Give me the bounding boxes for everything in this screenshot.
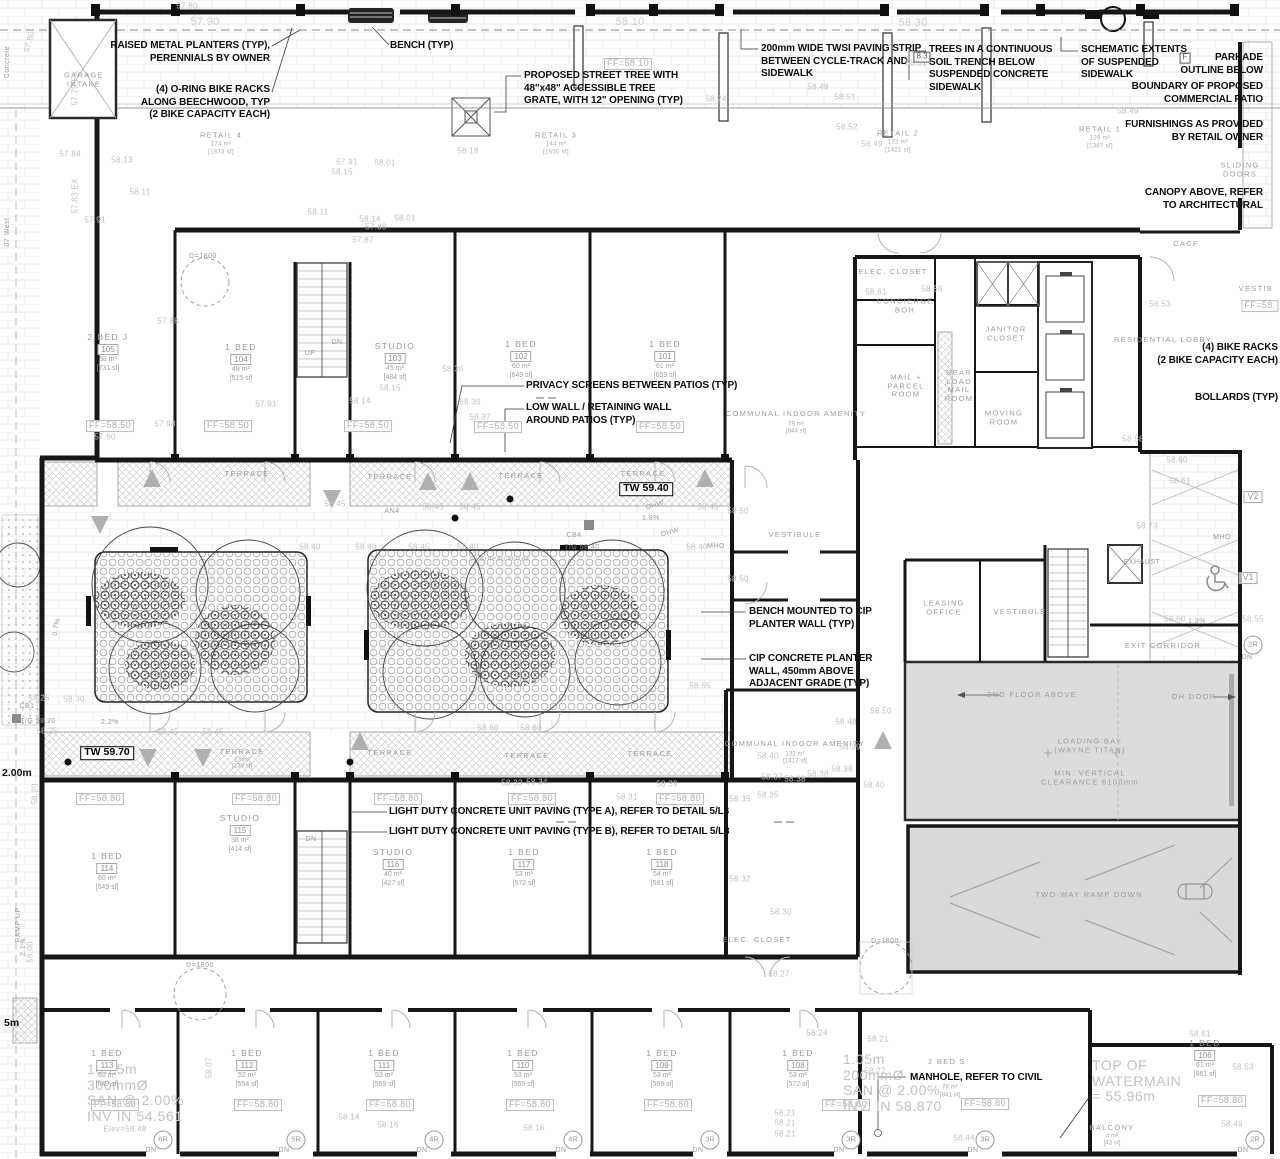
spot-elevation: 58.45 — [459, 504, 481, 513]
spot-elevation: 58.36 — [442, 366, 464, 375]
ff-elevation-label: FF=58.80 — [508, 793, 556, 805]
unit-type: STUDIO — [220, 813, 261, 823]
unit-number: 111 — [374, 1060, 394, 1071]
spot-elevation: 58.60 — [520, 725, 542, 734]
annotation-note: (4) O-RING BIKE RACKSALONG BEECHWOOD, TY… — [141, 84, 270, 122]
spot-elevation: 58.37 — [469, 414, 491, 423]
annotation-note: CANOPY ABOVE, REFERTO ARCHITECTURAL — [1145, 187, 1263, 212]
room-label: ELEC. CLOSET — [722, 936, 791, 945]
spot-elevation: 58.21 — [867, 1036, 889, 1045]
spot-elevation: 58.14 — [349, 398, 371, 407]
unit-number: 101 — [654, 351, 675, 362]
unit-area: [515 sf] — [230, 375, 253, 384]
plan-label: DN — [416, 1147, 427, 1155]
spot-elevation: 58.53 — [1149, 301, 1171, 310]
spot-elevation: 58.11 — [308, 209, 329, 218]
plan-label: OHW — [645, 500, 665, 512]
spot-elevation: 58.38 — [831, 766, 853, 775]
unit-area: [731 sf] — [97, 365, 120, 374]
unit-number: 115 — [230, 825, 251, 836]
spot-elevation: 58.56 — [921, 286, 943, 295]
unit-label-118: 1 BED11854 m²[581 sf] — [646, 847, 678, 888]
room-label: 2ND FLOOR ABOVE — [987, 691, 1077, 700]
unit-type: 1 BED — [1189, 1038, 1221, 1048]
spot-elevation: 58.31 — [616, 794, 638, 803]
ff-elevation-label: FF=58.80 — [76, 793, 124, 805]
annotation-note: PRIVACY SCREENS BETWEEN PATIOS (TYP) — [526, 380, 737, 393]
unit-area: 40 m² — [384, 871, 402, 880]
spot-elevation: 58.40 — [355, 544, 377, 553]
plan-label: T/G 58.20 — [20, 718, 56, 726]
unit-number: 102 — [510, 351, 531, 362]
spot-elevation: 58.40 — [686, 544, 708, 553]
room-area-label: 78 m² — [942, 1085, 958, 1092]
unit-label-111: 1 BED11153 m²[569 sf] — [368, 1048, 400, 1089]
annotation-note: BENCH MOUNTED TO CIPPLANTER WALL (TYP) — [749, 606, 872, 631]
spot-elevation: 57.91 — [336, 159, 358, 168]
unit-type: 1 BED — [782, 1048, 814, 1058]
plan-label: 57.79 EX — [72, 70, 81, 105]
spot-elevation: 58.33 — [501, 780, 523, 789]
spot-elevation: 58.32 — [729, 876, 751, 885]
room-area-label: [844 sf] — [786, 429, 806, 436]
unit-area: 61 m² — [1196, 1062, 1214, 1071]
annotation-note: BOUNDARY OF PROPOSEDCOMMERCIAL PATIO — [1132, 81, 1263, 106]
spot-elevation: 58.60 — [1164, 616, 1186, 625]
spot-elevation: 58.50 — [727, 576, 749, 585]
unit-number: 118 — [652, 859, 673, 870]
unit-area: 60 m² — [98, 875, 116, 884]
plan-label: AN4 — [384, 508, 399, 516]
room-label: RETAIL 1129 m²[1387 sf] — [1079, 125, 1121, 151]
spot-elevation: 58.44 — [953, 1135, 975, 1144]
floor-plan-canvas: RAISED METAL PLANTERS (TYP),PERENNIALS B… — [0, 0, 1280, 1159]
unit-label-112: 1 BED11252 m²[554 sf] — [231, 1048, 263, 1089]
unit-type: 1 BED — [231, 1048, 263, 1058]
unit-area: [649 sf] — [510, 372, 533, 381]
room-label: TERRACE — [628, 750, 673, 759]
plan-label: DN — [1237, 1147, 1248, 1155]
spot-elevation: 58.40 — [457, 544, 479, 553]
ff-elevation-label: FF=58.80 — [644, 1099, 692, 1111]
spot-elevation: 58.49 — [1221, 1121, 1243, 1130]
plan-label: 07 West — [4, 217, 12, 246]
room-label: TERRACE — [225, 470, 270, 479]
unit-label-113: 1 BED11360 m²[649 sf] — [91, 1048, 123, 1089]
plan-label: EXHAUST — [1124, 559, 1161, 567]
ff-elevation-label: FF=58. — [1241, 300, 1278, 312]
unit-number: 110 — [513, 1060, 534, 1071]
unit-area: 60 m² — [512, 363, 530, 372]
parking-stall-label: V1 — [1238, 572, 1257, 584]
spot-elevation: 58.61 — [1169, 478, 1191, 487]
plan-label: 1.3% — [1188, 618, 1206, 626]
unit-area: [649 sf] — [96, 884, 119, 893]
unit-number: 114 — [97, 863, 118, 874]
ff-elevation-label: FF=58.80 — [234, 1099, 282, 1111]
tw-elevation-label: TW 59.70 — [80, 746, 134, 760]
spot-elevation: 57.91 — [84, 217, 106, 226]
unit-label-115: STUDIO11538 m²[414 sf] — [220, 813, 261, 854]
annotation-note: PROPOSED STREET TREE WITH48"x48" ACCESSI… — [524, 70, 683, 108]
unit-area: [484 sf] — [384, 374, 407, 383]
unit-label-117: 1 BED11753 m²[572 sf] — [508, 847, 540, 888]
spot-elevation: 58.49 — [861, 141, 883, 150]
annotation-note: TREES IN A CONTINUOUSSOIL TRENCH BELOWSU… — [929, 44, 1052, 94]
spot-elevation: 58.40 — [863, 782, 885, 791]
plan-label: 0.7% — [52, 617, 63, 636]
unit-type: 1 BED — [649, 339, 681, 349]
unit-area: [572 sf] — [787, 1081, 810, 1090]
plan-label: CB1 — [19, 703, 34, 711]
plan-label: OHW — [660, 527, 680, 539]
unit-area: 52 m² — [238, 1072, 256, 1081]
room-label: LOADING BAY(WAYNE TITAN) — [1054, 738, 1126, 755]
spot-elevation: 58.30 — [898, 17, 927, 29]
plan-label: 2.2% — [101, 719, 119, 727]
unit-type: 1 BED — [507, 1048, 539, 1058]
spot-elevation: 57.90 — [190, 16, 219, 28]
unit-area: [572 sf] — [513, 880, 536, 889]
ff-elevation-label: FF=58.80 — [1198, 1095, 1246, 1107]
unit-area: [649 sf] — [96, 1081, 119, 1090]
room-label: MAIL +PARCELROOM — [887, 373, 924, 399]
unit-area: [414 sf] — [229, 846, 252, 855]
unit-area: [427 sf] — [382, 880, 405, 889]
unit-area: 53 m² — [789, 1072, 807, 1081]
plan-label: D=1800 — [871, 938, 899, 946]
spot-elevation: 58.50 — [870, 708, 892, 717]
spot-elevation: 58.25 — [36, 728, 58, 737]
unit-type: 1 BED — [508, 847, 540, 857]
plan-label: 8.3 — [913, 52, 930, 63]
civil-note: 1.05m200mmØSAN @ 2.00%INV. IN 58.870 — [843, 1052, 942, 1114]
spot-elevation: 58.52 — [836, 124, 858, 133]
unit-number: 106 — [1194, 1050, 1215, 1061]
unit-label-109: 1 BED10953 m²[569 sf] — [646, 1048, 678, 1089]
room-label: LEASINGOFFICE — [923, 600, 965, 617]
room-label: TWO-WAY RAMP DOWN — [1035, 891, 1143, 900]
plan-label: 57.80 — [23, 30, 37, 53]
annotation-note: LIGHT DUTY CONCRETE UNIT PAVING (TYPE B)… — [389, 826, 730, 839]
unit-label-102: 1 BED10260 m²[649 sf] — [505, 339, 537, 380]
spot-elevation: 58.38 — [784, 776, 806, 785]
door-tag: 2R — [1244, 636, 1263, 655]
unit-type: 1 BED — [368, 1048, 400, 1058]
spot-elevation: 58.45 — [324, 501, 346, 510]
spot-elevation: 58.45 — [697, 504, 719, 513]
unit-type: 1 BED — [91, 1048, 123, 1058]
unit-area: [569 sf] — [651, 1081, 674, 1090]
spot-elevation: 58.21 — [774, 1120, 796, 1129]
room-label: COMMUNAL INDOOR AMENITY — [726, 410, 866, 419]
spot-elevation: 58.21 — [774, 1131, 796, 1140]
plan-label: DN — [1241, 654, 1252, 662]
spot-elevation: 57.80 — [176, 3, 198, 12]
spot-elevation: 58.48 — [807, 84, 829, 93]
ff-elevation-label: FF=58.10 — [604, 58, 652, 70]
spot-elevation: 58.00 — [27, 941, 36, 963]
unit-number: 109 — [651, 1060, 672, 1071]
room-label: RESIDENTIAL LOBBY — [1114, 336, 1212, 345]
spot-elevation: 58.53 — [1232, 1064, 1254, 1073]
spot-elevation: 58.45 — [408, 544, 430, 553]
room-label: MOVINGROOM — [985, 410, 1023, 427]
room-label: RETAIL 3144 m²[1550 sf] — [535, 131, 577, 157]
unit-area: 60 m² — [98, 1072, 116, 1081]
spot-elevation: 58.48 — [835, 719, 857, 728]
spot-elevation: 58.35 — [757, 792, 779, 801]
spot-elevation: 58.15 — [379, 385, 401, 394]
unit-area: [569 sf] — [512, 1081, 535, 1090]
unit-label-110: 1 BED11053 m²[569 sf] — [507, 1048, 539, 1089]
spot-elevation: 58.18 — [457, 148, 479, 157]
room-area-label: [841 sf] — [940, 1093, 960, 1100]
unit-label-108: 1 BED10853 m²[572 sf] — [782, 1048, 814, 1089]
annotation-note: (4) BIKE RACKS(2 BIKE CAPACITY EACH) — [1157, 342, 1278, 367]
room-label: JANITORCLOSET — [985, 326, 1026, 343]
spot-elevation: 58.45 — [202, 729, 224, 738]
spot-elevation: 58.37 — [761, 774, 783, 783]
unit-number: 103 — [384, 353, 405, 364]
unit-area: 48 m² — [232, 366, 250, 375]
spot-elevation: 58.49 — [1117, 108, 1139, 117]
room-label: REARLOADMAILROOM — [945, 369, 974, 403]
ff-elevation-label: FF=58.50 — [344, 420, 392, 432]
unit-area: [554 sf] — [236, 1081, 259, 1090]
spot-elevation: 58.58 — [1122, 436, 1144, 445]
ff-elevation-label: FF=58.80 — [656, 793, 704, 805]
plan-label: DN — [555, 1147, 566, 1155]
plan-label: UP — [305, 350, 316, 358]
spot-elevation: 58.10 — [615, 16, 644, 28]
spot-elevation: 57.89 — [365, 224, 387, 233]
plan-label: T/G 58.40 — [564, 544, 600, 552]
ff-elevation-label: FF=58.80 — [374, 793, 422, 805]
room-area-label: [43 sf] — [1104, 1141, 1121, 1148]
spot-elevation: 58.01 — [374, 160, 396, 169]
spot-elevation: 58.16 — [377, 1122, 399, 1131]
spot-elevation: 57.98 — [154, 421, 176, 430]
unit-label-103: STUDIO10345 m²[484 sf] — [375, 341, 416, 382]
room-area-label: [1417 sf] — [783, 759, 807, 766]
unit-type: 1 BED — [646, 1048, 678, 1058]
unit-area: [581 sf] — [651, 880, 674, 889]
room-label: SLIDINGDOORS — [1220, 162, 1259, 179]
unit-area: [661 sf] — [1194, 1071, 1217, 1080]
unit-area: 53 m² — [653, 1072, 671, 1081]
unit-number: 113 — [97, 1060, 118, 1071]
spot-elevation: 58.61 — [865, 289, 887, 298]
unit-area: 68 m² — [99, 356, 117, 365]
spot-elevation: 58.55 — [689, 683, 711, 692]
spot-elevation: 58.14 — [338, 1114, 360, 1123]
spot-elevation: 58.35 — [729, 796, 751, 805]
room-label: VESTIBULE — [769, 531, 822, 540]
parking-stall-label: V2 — [1243, 491, 1262, 503]
plan-label: Concrete — [4, 46, 12, 78]
annotation-note: BENCH (TYP) — [390, 40, 453, 53]
annotation-note: CIP CONCRETE PLANTERWALL, 450mm ABOVEADJ… — [749, 653, 872, 691]
unit-area: 53 m² — [514, 1072, 532, 1081]
plan-label: DN — [278, 1147, 289, 1155]
spot-elevation: 58.38 — [807, 771, 829, 780]
spot-elevation: 57.90 — [94, 434, 116, 443]
spot-elevation: 58.39 — [656, 781, 678, 790]
unit-label-106: 1 BED10661 m²[661 sf] — [1189, 1038, 1221, 1079]
room-label: CONCIERGEBOH — [876, 298, 933, 315]
unit-number: 105 — [97, 344, 118, 355]
room-label: VESTIB — [1239, 285, 1273, 294]
unit-area: 61 m² — [656, 363, 674, 372]
annotation-note: PARKADEOUTLINE BELOW — [1180, 52, 1263, 77]
plan-label: 5m — [4, 1018, 19, 1030]
unit-label-105: 2 BED J10568 m²[731 sf] — [88, 332, 129, 373]
unit-number: 117 — [514, 859, 535, 870]
spot-elevation: 58.11 — [130, 189, 151, 198]
spot-elevation: 58.07 — [206, 1057, 215, 1079]
plan-label: Elev=58.48 — [103, 1126, 146, 1135]
spot-elevation: 58.34 — [526, 779, 548, 788]
spot-elevation: 57.87 — [352, 237, 374, 246]
spot-elevation: 57.91 — [255, 401, 277, 410]
plan-label: DN — [833, 1147, 844, 1155]
plan-label: MHO — [1213, 534, 1231, 542]
plan-label: DN — [967, 1147, 978, 1155]
ff-elevation-label: FF=58.50 — [86, 420, 134, 432]
ff-elevation-label: FF=58.80 — [232, 793, 280, 805]
spot-elevation: 58.27 — [768, 971, 790, 980]
room-label: TERRACE — [499, 472, 544, 481]
room-area-label: [139 sf] — [232, 764, 252, 771]
plan-label: CB4 — [566, 532, 581, 540]
room-label: TERRACE — [368, 473, 413, 482]
annotation-note: BOLLARDS (TYP) — [1195, 392, 1278, 405]
room-label: TERRACE — [505, 752, 550, 761]
unit-area: 38 m² — [231, 837, 249, 846]
spot-elevation: 58.25 — [28, 695, 50, 704]
unit-label-116: STUDIO11640 m²[427 sf] — [373, 847, 414, 888]
ff-elevation-label: FF=58.80 — [506, 1099, 554, 1111]
spot-elevation: 58.60 — [477, 725, 499, 734]
spot-elevation: 57.84 — [59, 151, 81, 160]
room-label: OH DOOR — [1172, 693, 1217, 702]
room-label: RETAIL 4174 m²[1873 sf] — [200, 131, 242, 157]
spot-elevation: 58.36 — [459, 399, 481, 408]
spot-elevation: 58.51 — [834, 94, 856, 103]
plan-label: DN — [692, 1147, 703, 1155]
plan-label: RAMP UP — [15, 907, 23, 942]
annotation-note: LIGHT DUTY CONCRETE UNIT PAVING (TYPE A)… — [389, 806, 729, 819]
unit-type: 2 BED J — [88, 332, 129, 342]
room-label: ELEC. CLOSET — [858, 268, 927, 277]
spot-elevation: 58.13 — [111, 157, 133, 166]
annotation-note: RAISED METAL PLANTERS (TYP),PERENNIALS B… — [110, 40, 270, 65]
unit-number: 108 — [787, 1060, 808, 1071]
room-label: MIN. VERTICALCLEARANCE 6100mm — [1041, 770, 1139, 787]
unit-label-101: 1 BED10161 m²[659 sf] — [649, 339, 681, 380]
spot-elevation: 58.45 — [422, 504, 444, 513]
plan-label: 2.00m — [2, 768, 32, 780]
spot-elevation: 58.39 — [839, 744, 861, 753]
unit-type: 1 BED — [505, 339, 537, 349]
spot-elevation: 58.60 — [1166, 457, 1188, 466]
plan-label: 57.83 EX — [72, 178, 81, 213]
spot-elevation: 58.50 — [727, 508, 749, 517]
plan-label: DN — [145, 1147, 156, 1155]
plan-label: MHO — [707, 543, 725, 551]
plan-label: D=1800 — [189, 253, 217, 261]
unit-area: 53 m² — [375, 1072, 393, 1081]
unit-type: 1 BED — [91, 851, 123, 861]
plan-label: DN — [305, 836, 316, 844]
annotation-note: SCHEMATIC EXTENTSOF SUSPENDEDSIDEWALK — [1081, 44, 1187, 82]
annotation-note: FURNISHINGS AS PROVIDEDBY RETAIL OWNER — [1125, 119, 1263, 144]
annotation-note: 200mm WIDE TWSI PAVING STRIPBETWEEN CYCL… — [761, 43, 921, 81]
plan-label: DN — [331, 339, 342, 347]
plan-label: F — [1180, 53, 1191, 64]
ff-elevation-label: FF=58.80 — [366, 1099, 414, 1111]
room-label: TERRACE — [368, 749, 413, 758]
plan-label: Overhead Wires — [470, 555, 531, 562]
unit-type: 1 BED — [225, 342, 257, 352]
spot-elevation: 58.55 — [1242, 616, 1264, 625]
spot-elevation: 58.30 — [63, 696, 85, 705]
unit-number: 104 — [230, 354, 251, 365]
civil-note: TOP OFWATERMAIN= 55.96m — [1092, 1058, 1181, 1105]
plan-label: 1.8% — [642, 515, 660, 523]
room-label: RETAIL 2132 m²[1421 sf] — [877, 129, 919, 155]
ff-elevation-label: FF=58.80 — [961, 1098, 1009, 1110]
room-label: TERRACE — [621, 470, 666, 479]
room-label: TERRACE — [220, 748, 265, 757]
spot-elevation: 58.01 — [394, 215, 416, 224]
spot-elevation: 58.21 — [774, 1110, 796, 1119]
tw-elevation-label: TW 59.40 — [619, 482, 673, 496]
spot-elevation: 58.45 — [157, 729, 179, 738]
spot-elevation: 58.24 — [705, 96, 727, 105]
spot-elevation: 58.24 — [806, 1030, 828, 1039]
spot-elevation: 58.20 — [32, 783, 41, 805]
ff-elevation-label: FF=58.50 — [474, 421, 522, 433]
unit-area: 45 m² — [386, 365, 404, 374]
unit-label-104: 1 BED10448 m²[515 sf] — [225, 342, 257, 383]
spot-elevation: 58.15 — [331, 169, 353, 178]
spot-elevation: 58.73 — [1136, 523, 1158, 532]
spot-elevation: 58.40 — [757, 753, 779, 762]
unit-area: [659 sf] — [654, 372, 677, 381]
unit-type: STUDIO — [373, 847, 414, 857]
spot-elevation: 58.40 — [299, 544, 321, 553]
unit-type: 1 BED — [646, 847, 678, 857]
room-label: BALCONY — [1090, 1124, 1135, 1133]
spot-elevation: 58.16 — [523, 1125, 545, 1134]
room-label: VESTIBULE — [994, 608, 1047, 617]
ff-elevation-label: FF=58.50 — [204, 420, 252, 432]
unit-number: 112 — [237, 1060, 258, 1071]
unit-area: [569 sf] — [373, 1081, 396, 1090]
unit-label-114: 1 BED11460 m²[649 sf] — [91, 851, 123, 892]
unit-type: STUDIO — [375, 341, 416, 351]
spot-elevation: 58.30 — [770, 909, 792, 918]
spot-elevation: 57.88 — [157, 318, 179, 327]
room-label: CACF — [1173, 240, 1199, 249]
ff-elevation-label: FF=58.50 — [636, 421, 684, 433]
plan-label: D=1800 — [186, 962, 214, 970]
plan-labels-layer: RAISED METAL PLANTERS (TYP),PERENNIALS B… — [0, 0, 1280, 1159]
room-label: EXIT CORRIDOR — [1125, 642, 1201, 651]
unit-number: 116 — [383, 859, 404, 870]
